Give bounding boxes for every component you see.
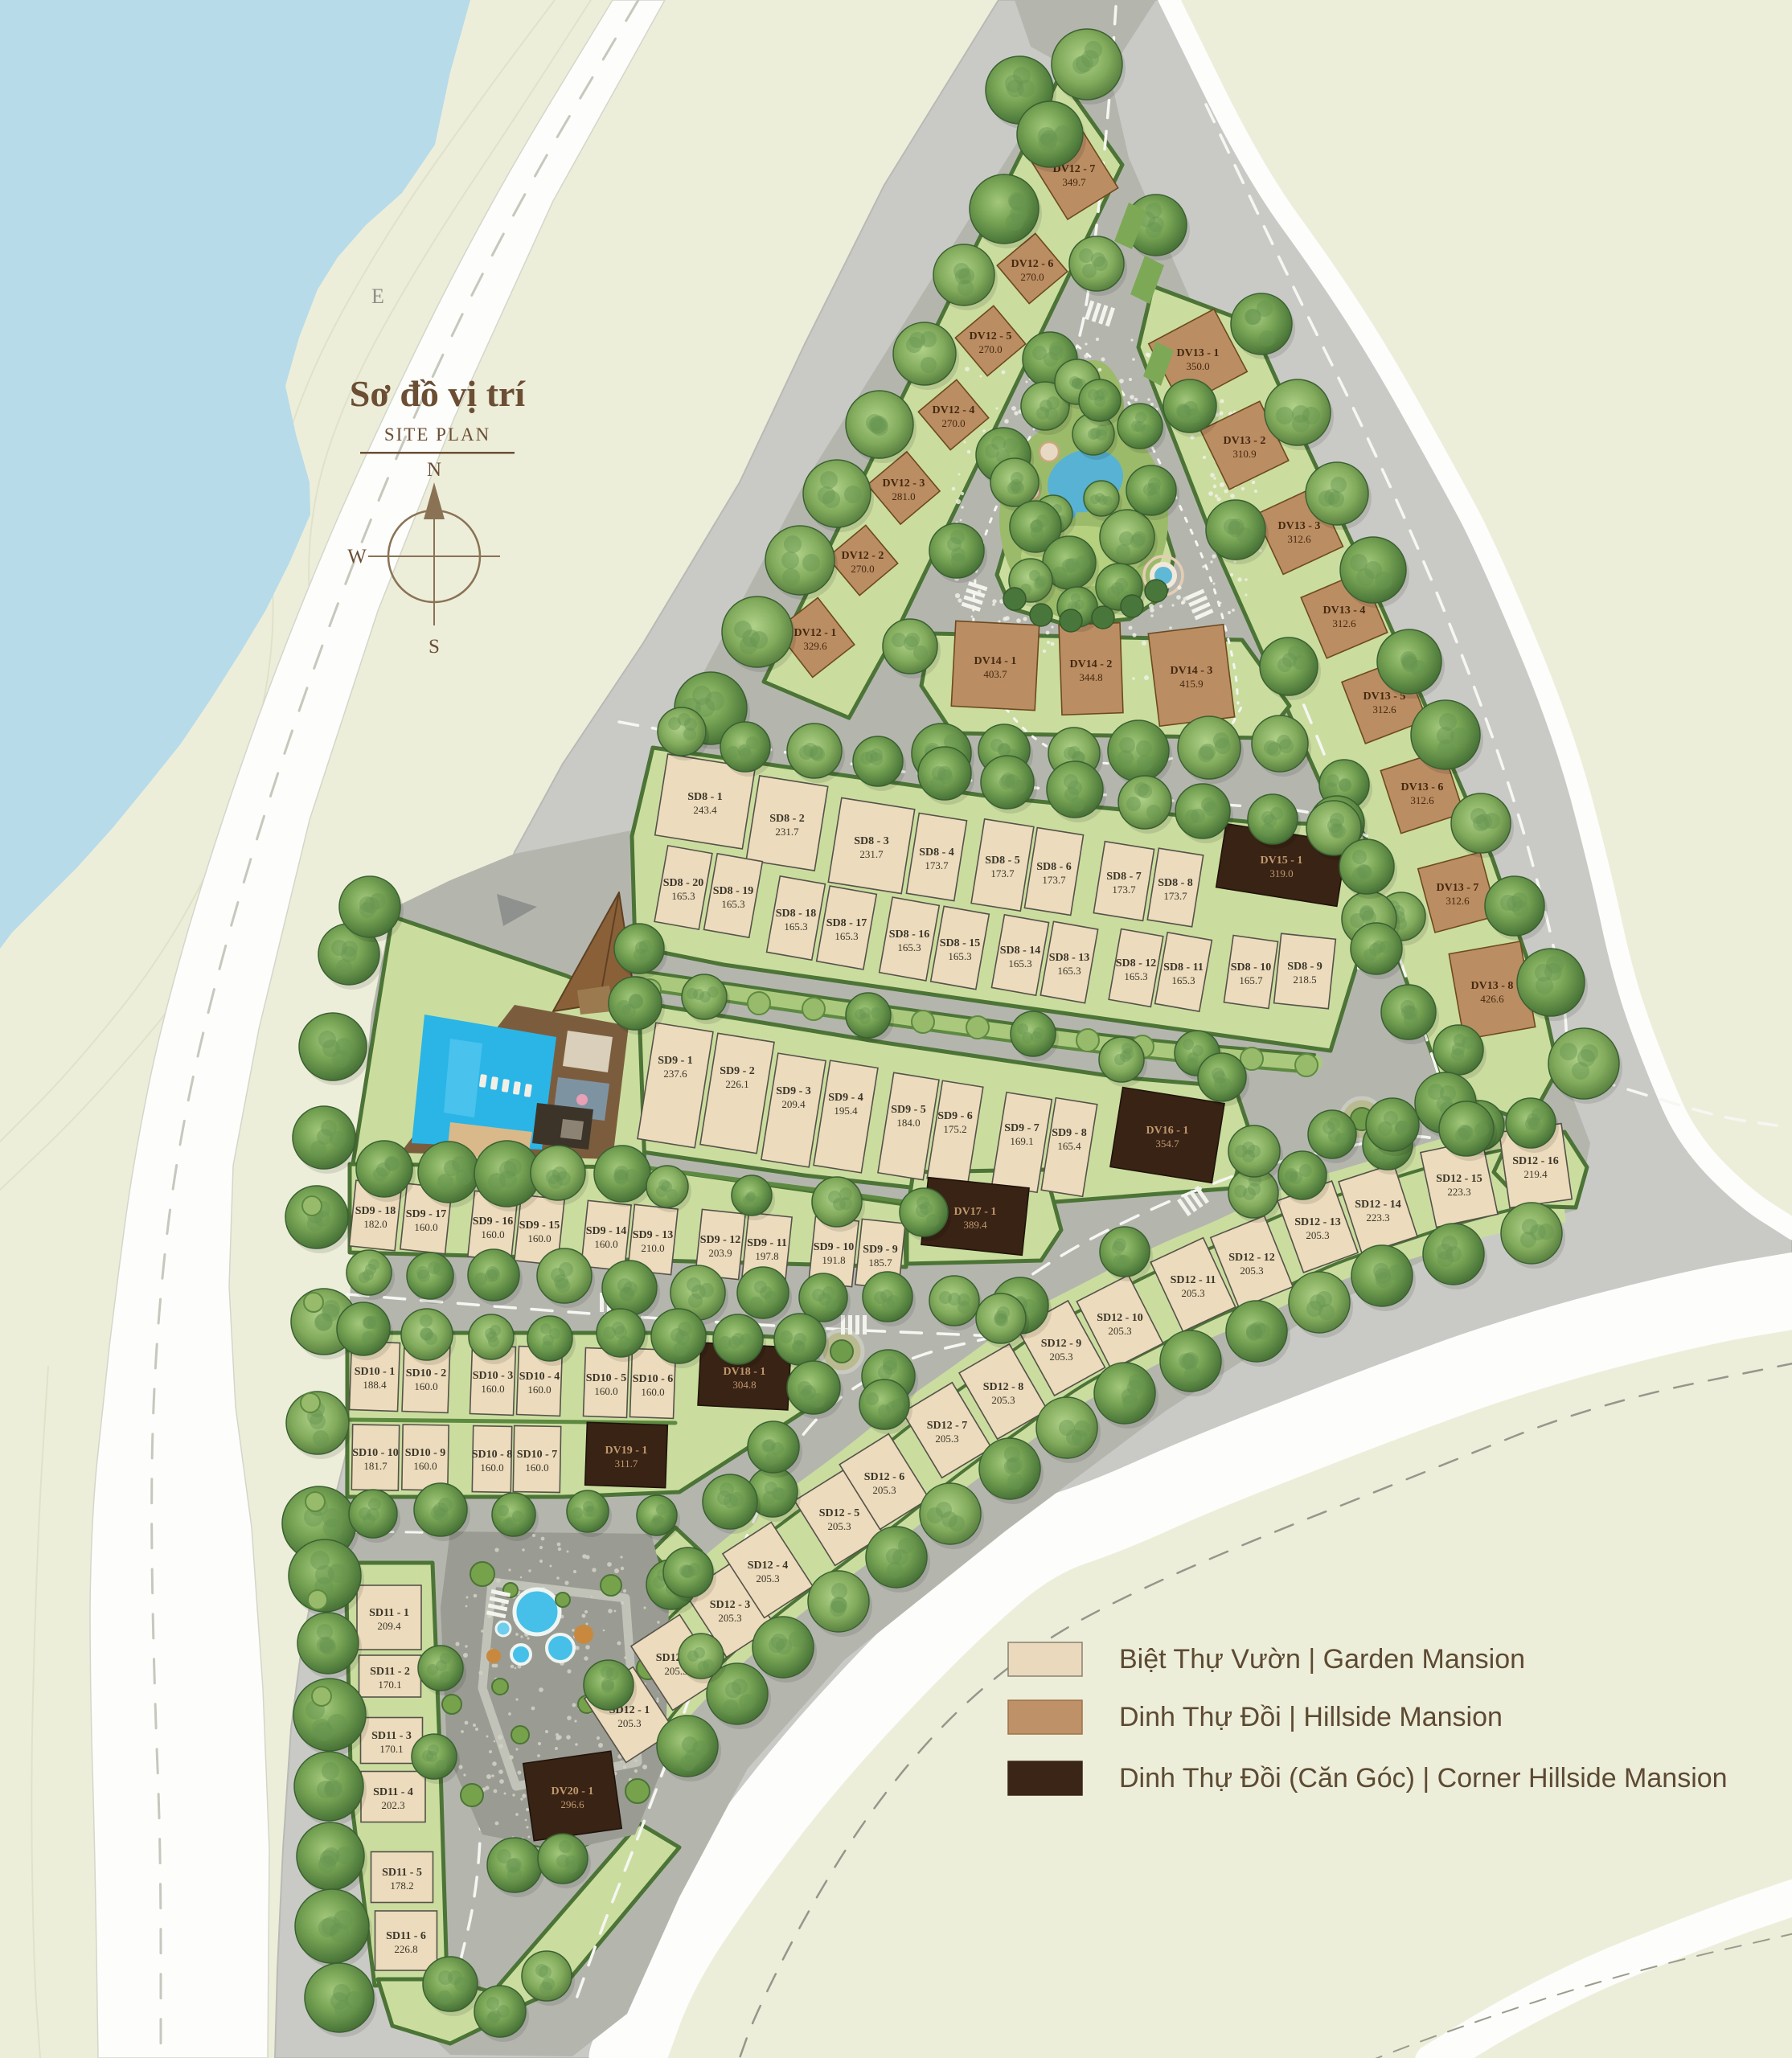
svg-text:Biệt Thự Vườn | Garden Mansion: Biệt Thự Vườn | Garden Mansion	[1119, 1644, 1525, 1675]
svg-text:203.9: 203.9	[708, 1247, 732, 1259]
svg-text:195.4: 195.4	[834, 1105, 858, 1117]
svg-text:DV14 - 3: DV14 - 3	[1171, 665, 1213, 677]
svg-text:160.0: 160.0	[414, 1221, 437, 1233]
svg-text:319.0: 319.0	[1269, 867, 1293, 879]
svg-text:160.0: 160.0	[641, 1386, 664, 1398]
svg-text:SD9 - 11: SD9 - 11	[747, 1237, 787, 1249]
svg-text:SD8 - 3: SD8 - 3	[854, 835, 889, 847]
svg-text:209.4: 209.4	[781, 1098, 806, 1110]
svg-text:DV13 - 2: DV13 - 2	[1224, 435, 1266, 447]
svg-text:SD12 - 10: SD12 - 10	[1097, 1312, 1143, 1324]
svg-text:160.0: 160.0	[481, 1228, 504, 1240]
svg-text:SD9 - 15: SD9 - 15	[519, 1220, 560, 1232]
svg-text:SD8 - 12: SD8 - 12	[1116, 957, 1157, 970]
svg-text:DV19 - 1: DV19 - 1	[605, 1445, 648, 1457]
svg-text:SD8 - 18: SD8 - 18	[776, 908, 817, 920]
svg-text:182.0: 182.0	[363, 1218, 387, 1230]
svg-text:SD8 - 2: SD8 - 2	[769, 813, 805, 825]
svg-text:SD12 - 5: SD12 - 5	[819, 1507, 860, 1519]
svg-text:197.8: 197.8	[755, 1250, 778, 1262]
svg-text:SD8 - 7: SD8 - 7	[1106, 871, 1142, 883]
svg-text:205.3: 205.3	[991, 1394, 1015, 1406]
svg-text:SD11 - 3: SD11 - 3	[371, 1730, 412, 1742]
svg-text:Dinh Thự Đồi | Hillside Mansio: Dinh Thự Đồi | Hillside Mansion	[1119, 1702, 1503, 1732]
svg-text:312.6: 312.6	[1287, 533, 1311, 545]
svg-text:178.2: 178.2	[390, 1880, 413, 1892]
svg-text:270.0: 270.0	[941, 417, 965, 429]
svg-text:165.3: 165.3	[897, 941, 921, 953]
svg-text:DV12 - 3: DV12 - 3	[883, 478, 925, 490]
svg-text:DV13 - 3: DV13 - 3	[1278, 520, 1321, 532]
svg-text:SD8 - 19: SD8 - 19	[713, 885, 754, 897]
svg-text:SD10 - 9: SD10 - 9	[405, 1447, 446, 1459]
svg-text:SD11 - 4: SD11 - 4	[373, 1786, 413, 1798]
svg-text:205.3: 205.3	[718, 1612, 741, 1624]
svg-text:181.7: 181.7	[363, 1460, 388, 1472]
svg-text:202.3: 202.3	[381, 1799, 404, 1811]
svg-text:185.7: 185.7	[868, 1257, 892, 1269]
svg-text:165.3: 165.3	[948, 950, 971, 962]
svg-text:165.3: 165.3	[1171, 974, 1195, 986]
svg-text:DV12 - 4: DV12 - 4	[933, 404, 975, 416]
svg-text:SD12 - 13: SD12 - 13	[1294, 1216, 1341, 1228]
svg-text:SD8 - 1: SD8 - 1	[687, 791, 723, 803]
svg-text:SITE PLAN: SITE PLAN	[384, 424, 490, 445]
svg-text:165.7: 165.7	[1239, 974, 1263, 986]
svg-text:223.3: 223.3	[1447, 1186, 1470, 1198]
svg-text:304.8: 304.8	[732, 1379, 756, 1391]
svg-text:160.0: 160.0	[594, 1385, 617, 1397]
svg-text:184.0: 184.0	[896, 1117, 920, 1129]
svg-text:311.7: 311.7	[615, 1457, 638, 1470]
svg-text:160.0: 160.0	[480, 1462, 503, 1474]
svg-text:SD12 - 7: SD12 - 7	[927, 1420, 968, 1432]
svg-text:SD10 - 3: SD10 - 3	[473, 1370, 514, 1382]
svg-text:165.3: 165.3	[1008, 957, 1031, 970]
svg-text:165.3: 165.3	[784, 920, 807, 933]
svg-text:SD11 - 5: SD11 - 5	[382, 1867, 422, 1879]
svg-text:173.7: 173.7	[1042, 874, 1066, 886]
svg-text:SD10 - 7: SD10 - 7	[517, 1449, 558, 1461]
svg-text:205.3: 205.3	[827, 1520, 851, 1532]
svg-text:DV12 - 1: DV12 - 1	[794, 627, 837, 639]
svg-text:SD8 - 20: SD8 - 20	[663, 877, 704, 889]
svg-text:205.3: 205.3	[1240, 1265, 1263, 1277]
svg-text:205.3: 205.3	[935, 1433, 958, 1445]
svg-text:209.4: 209.4	[377, 1620, 401, 1632]
svg-text:329.6: 329.6	[803, 640, 827, 652]
svg-text:SD9 - 5: SD9 - 5	[891, 1104, 926, 1116]
svg-text:SD12 - 15: SD12 - 15	[1436, 1173, 1482, 1185]
svg-text:SD10 - 4: SD10 - 4	[519, 1371, 560, 1383]
svg-text:SD9 - 18: SD9 - 18	[355, 1205, 396, 1217]
svg-text:231.7: 231.7	[859, 848, 884, 860]
svg-text:160.0: 160.0	[525, 1462, 548, 1474]
svg-text:SD10 - 10: SD10 - 10	[352, 1447, 399, 1459]
svg-text:DV16 - 1: DV16 - 1	[1146, 1125, 1189, 1137]
svg-text:SD9 - 4: SD9 - 4	[828, 1092, 863, 1104]
svg-text:DV13 - 6: DV13 - 6	[1401, 781, 1444, 793]
svg-text:DV20 - 1: DV20 - 1	[552, 1785, 594, 1798]
svg-text:SD8 - 5: SD8 - 5	[985, 855, 1020, 867]
svg-text:281.0: 281.0	[892, 490, 915, 502]
svg-text:SD9 - 13: SD9 - 13	[633, 1229, 674, 1241]
svg-text:165.3: 165.3	[721, 898, 744, 910]
svg-text:SD10 - 5: SD10 - 5	[586, 1372, 627, 1384]
svg-text:231.7: 231.7	[775, 826, 799, 838]
svg-text:DV12 - 5: DV12 - 5	[970, 330, 1012, 342]
svg-text:237.6: 237.6	[663, 1068, 687, 1080]
svg-text:226.8: 226.8	[394, 1943, 417, 1955]
svg-text:SD8 - 15: SD8 - 15	[940, 937, 981, 949]
svg-text:270.0: 270.0	[978, 343, 1002, 355]
svg-text:DV12 - 6: DV12 - 6	[1011, 258, 1054, 270]
svg-text:SD9 - 9: SD9 - 9	[863, 1244, 898, 1256]
svg-text:205.3: 205.3	[756, 1572, 779, 1584]
svg-text:DV14 - 2: DV14 - 2	[1070, 658, 1113, 670]
svg-text:170.1: 170.1	[379, 1743, 403, 1755]
svg-text:SD11 - 1: SD11 - 1	[369, 1607, 409, 1619]
svg-text:SD12 - 11: SD12 - 11	[1171, 1274, 1216, 1286]
svg-text:SD9 - 6: SD9 - 6	[937, 1110, 973, 1122]
svg-text:349.7: 349.7	[1062, 176, 1086, 188]
svg-text:415.9: 415.9	[1179, 678, 1203, 690]
svg-text:296.6: 296.6	[560, 1798, 584, 1810]
svg-text:403.7: 403.7	[983, 668, 1007, 680]
svg-text:SD10 - 6: SD10 - 6	[633, 1373, 674, 1385]
svg-text:160.0: 160.0	[594, 1238, 617, 1250]
svg-text:191.8: 191.8	[822, 1254, 845, 1266]
svg-text:SD8 - 9: SD8 - 9	[1287, 961, 1322, 973]
svg-text:SD9 - 1: SD9 - 1	[658, 1055, 693, 1067]
svg-text:173.7: 173.7	[925, 859, 949, 871]
svg-text:SD12 - 6: SD12 - 6	[864, 1471, 905, 1483]
svg-text:SD8 - 17: SD8 - 17	[826, 917, 867, 929]
svg-text:SD12 - 4: SD12 - 4	[748, 1560, 789, 1572]
svg-text:312.6: 312.6	[1332, 617, 1356, 629]
svg-text:188.4: 188.4	[363, 1379, 387, 1391]
svg-text:312.6: 312.6	[1410, 794, 1434, 806]
svg-text:SD8 - 10: SD8 - 10	[1231, 961, 1272, 974]
svg-text:Dinh Thự Đồi (Căn Góc) | Corne: Dinh Thự Đồi (Căn Góc) | Corner Hillside…	[1119, 1763, 1728, 1794]
svg-text:160.0: 160.0	[413, 1460, 437, 1472]
svg-text:165.3: 165.3	[671, 890, 695, 902]
svg-text:DV15 - 1: DV15 - 1	[1261, 855, 1303, 867]
svg-text:SD8 - 11: SD8 - 11	[1163, 961, 1204, 974]
svg-text:SD8 - 4: SD8 - 4	[919, 847, 954, 859]
svg-text:SD10 - 2: SD10 - 2	[406, 1367, 447, 1380]
svg-text:426.6: 426.6	[1480, 993, 1504, 1005]
svg-text:160.0: 160.0	[414, 1380, 437, 1392]
svg-text:219.4: 219.4	[1523, 1168, 1548, 1180]
svg-text:310.9: 310.9	[1232, 448, 1256, 460]
svg-text:N: N	[427, 459, 441, 481]
svg-text:243.4: 243.4	[693, 804, 717, 816]
svg-text:SD11 - 6: SD11 - 6	[386, 1930, 426, 1942]
svg-text:226.1: 226.1	[725, 1078, 748, 1090]
svg-text:Sơ đồ vị trí: Sơ đồ vị trí	[350, 373, 527, 414]
svg-text:SD9 - 14: SD9 - 14	[586, 1225, 627, 1237]
svg-text:312.6: 312.6	[1372, 703, 1396, 715]
svg-text:SD12 - 14: SD12 - 14	[1355, 1199, 1401, 1211]
svg-text:165.3: 165.3	[1057, 965, 1081, 977]
svg-text:SD9 - 2: SD9 - 2	[720, 1065, 755, 1077]
svg-text:SD9 - 10: SD9 - 10	[814, 1241, 855, 1253]
svg-text:DV12 - 2: DV12 - 2	[842, 550, 884, 562]
svg-text:270.0: 270.0	[851, 563, 874, 575]
svg-text:DV13 - 1: DV13 - 1	[1177, 347, 1220, 359]
svg-text:205.3: 205.3	[1108, 1325, 1131, 1337]
svg-text:SD9 - 7: SD9 - 7	[1004, 1122, 1040, 1134]
svg-text:DV13 - 4: DV13 - 4	[1323, 605, 1366, 617]
svg-text:173.7: 173.7	[1112, 883, 1136, 896]
svg-text:SD9 - 3: SD9 - 3	[776, 1085, 811, 1097]
svg-text:SD12 - 8: SD12 - 8	[983, 1381, 1024, 1393]
svg-text:344.8: 344.8	[1079, 671, 1102, 683]
svg-text:165.3: 165.3	[834, 930, 858, 942]
svg-text:312.6: 312.6	[1445, 895, 1470, 907]
svg-text:205.3: 205.3	[617, 1717, 641, 1729]
svg-text:DV13 - 7: DV13 - 7	[1437, 882, 1479, 894]
svg-text:SD8 - 14: SD8 - 14	[1000, 945, 1041, 957]
svg-text:270.0: 270.0	[1020, 271, 1044, 283]
svg-text:SD12 - 12: SD12 - 12	[1228, 1252, 1275, 1264]
svg-text:W: W	[347, 546, 367, 568]
svg-text:SD9 - 16: SD9 - 16	[473, 1216, 514, 1228]
svg-text:SD11 - 2: SD11 - 2	[370, 1666, 410, 1678]
svg-text:210.0: 210.0	[641, 1242, 664, 1254]
svg-text:DV14 - 1: DV14 - 1	[974, 655, 1017, 667]
svg-text:E: E	[371, 285, 384, 308]
svg-text:169.1: 169.1	[1010, 1135, 1033, 1147]
svg-text:SD8 - 8: SD8 - 8	[1158, 877, 1193, 889]
svg-text:SD12 - 9: SD12 - 9	[1041, 1338, 1082, 1350]
svg-text:SD8 - 16: SD8 - 16	[889, 929, 930, 941]
svg-text:205.3: 205.3	[872, 1484, 896, 1496]
svg-text:205.3: 205.3	[1049, 1351, 1072, 1363]
svg-text:205.3: 205.3	[1306, 1229, 1329, 1241]
svg-text:350.0: 350.0	[1186, 360, 1209, 372]
svg-text:160.0: 160.0	[527, 1232, 551, 1244]
svg-text:173.7: 173.7	[1163, 890, 1187, 902]
svg-text:SD10 - 8: SD10 - 8	[472, 1449, 513, 1461]
svg-text:S: S	[429, 636, 440, 658]
svg-text:SD8 - 13: SD8 - 13	[1049, 952, 1090, 964]
svg-text:SD9 - 17: SD9 - 17	[406, 1208, 447, 1220]
svg-text:SD9 - 8: SD9 - 8	[1052, 1127, 1087, 1139]
svg-text:165.4: 165.4	[1057, 1140, 1081, 1152]
svg-text:170.1: 170.1	[378, 1679, 401, 1691]
svg-text:160.0: 160.0	[481, 1383, 504, 1395]
svg-text:205.3: 205.3	[1181, 1287, 1204, 1299]
svg-text:SD8 - 6: SD8 - 6	[1036, 861, 1072, 873]
svg-text:SD9 - 12: SD9 - 12	[700, 1234, 741, 1246]
svg-text:SD12 - 16: SD12 - 16	[1512, 1155, 1559, 1167]
svg-text:218.5: 218.5	[1293, 974, 1316, 986]
svg-text:DV13 - 8: DV13 - 8	[1471, 980, 1514, 992]
svg-text:173.7: 173.7	[990, 867, 1015, 879]
svg-text:389.4: 389.4	[963, 1219, 987, 1231]
svg-text:175.2: 175.2	[943, 1123, 966, 1135]
svg-text:SD10 - 1: SD10 - 1	[355, 1366, 396, 1378]
svg-text:160.0: 160.0	[527, 1384, 551, 1396]
svg-text:165.3: 165.3	[1124, 970, 1147, 982]
svg-text:DV17 - 1: DV17 - 1	[954, 1206, 997, 1218]
svg-text:354.7: 354.7	[1155, 1138, 1179, 1150]
svg-text:SD12 - 3: SD12 - 3	[710, 1599, 751, 1611]
svg-text:223.3: 223.3	[1366, 1211, 1389, 1224]
